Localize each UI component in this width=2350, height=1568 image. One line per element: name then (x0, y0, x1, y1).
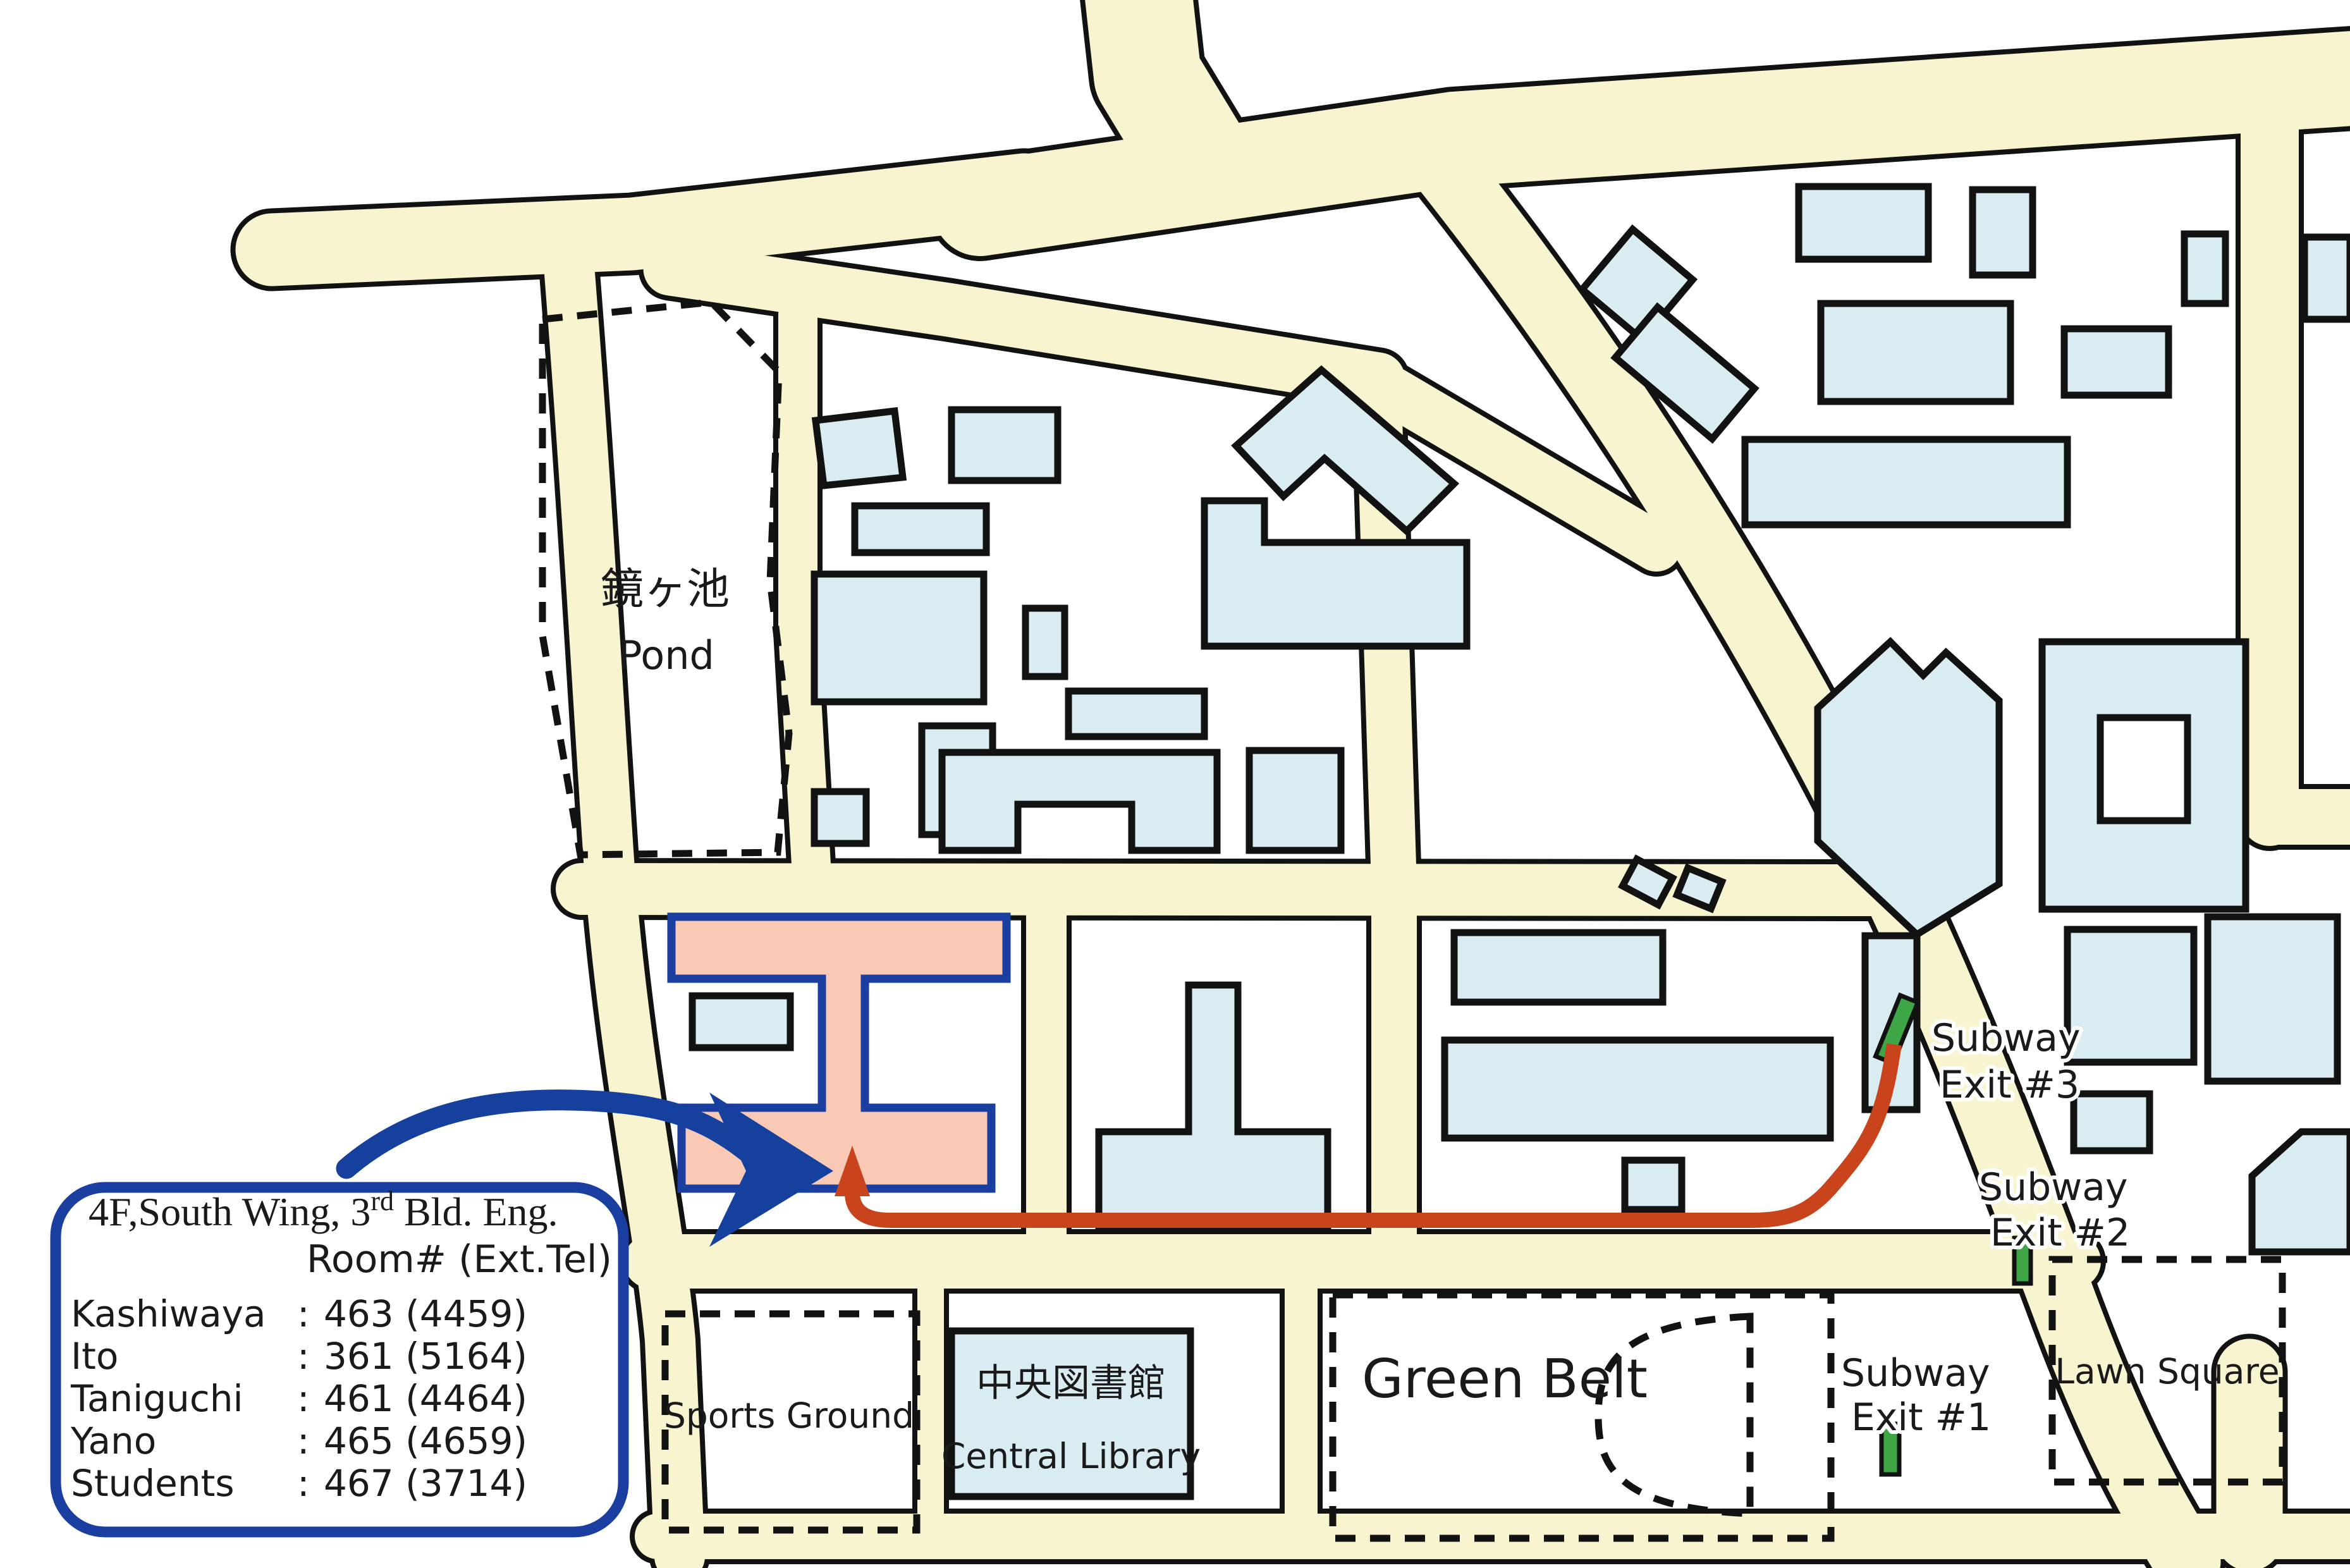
green-belt-track (1598, 1316, 1750, 1514)
pond-label-en: Pond (618, 632, 714, 678)
building (2304, 237, 2350, 319)
green-belt-label: Green Belt (1362, 1348, 1648, 1411)
building (855, 506, 986, 553)
svg-text:465 (4659): 465 (4659) (324, 1419, 527, 1462)
svg-text:461 (4464): 461 (4464) (324, 1377, 527, 1420)
building (1625, 1160, 1682, 1210)
svg-text:467 (3714): 467 (3714) (324, 1462, 527, 1505)
building (1454, 933, 1663, 1002)
building (814, 574, 984, 702)
svg-text::: : (297, 1335, 310, 1378)
campus-map: 鏡ヶ池 Pond Sports Ground 中央図書館 Central Lib… (0, 0, 2350, 1568)
building (1445, 1040, 1830, 1138)
svg-text:Exit #2: Exit #2 (1990, 1211, 2130, 1255)
svg-text:463 (4459): 463 (4459) (324, 1292, 527, 1335)
buildings (692, 187, 2350, 1252)
green-belt-outline (1333, 1295, 1831, 1538)
building (1799, 187, 1928, 259)
svg-text:Exit #3: Exit #3 (1940, 1063, 2079, 1107)
svg-text:Students: Students (71, 1462, 235, 1505)
svg-text::: : (297, 1462, 310, 1505)
subway-exit-1-label: Subway Exit #1 (1841, 1351, 1991, 1440)
svg-text::: : (297, 1419, 310, 1462)
building (1821, 303, 2010, 401)
building (1249, 750, 1341, 850)
building (1973, 190, 2033, 275)
building (1204, 501, 1467, 646)
svg-text::: : (297, 1292, 310, 1335)
building (2042, 642, 2246, 909)
building (942, 752, 1217, 850)
building (1068, 691, 1204, 737)
svg-text:361 (5164): 361 (5164) (324, 1335, 527, 1378)
staff-row: Taniguchi : 461 (4464) (70, 1377, 527, 1420)
svg-text:Yano: Yano (70, 1419, 156, 1462)
building (2252, 1132, 2350, 1252)
library-label-jp: 中央図書館 (976, 1361, 1166, 1406)
building (1099, 985, 1328, 1230)
callout-title: 4F,South Wing, 3rd Bld. Eng. (89, 1185, 558, 1234)
svg-text:Ito: Ito (71, 1335, 118, 1378)
staff-row: Yano : 465 (4659) (70, 1419, 527, 1462)
building (2067, 929, 2194, 1062)
building (2064, 329, 2169, 395)
sports-ground-label: Sports Ground (664, 1395, 914, 1436)
building (1745, 439, 2067, 525)
svg-text:Subway: Subway (1979, 1165, 2128, 1210)
building (1025, 608, 1065, 677)
callout: 4F,South Wing, 3rd Bld. Eng. Room# (Ext.… (56, 1185, 623, 1532)
building (814, 792, 866, 843)
svg-text:Subway: Subway (1841, 1351, 1990, 1395)
callout-room-header: Room# (Ext.Tel) (307, 1237, 612, 1282)
staff-row: Students : 467 (3714) (71, 1462, 527, 1505)
library-label-en: Central Library (941, 1436, 1201, 1476)
lawn-square-label: Lawn Square (2055, 1351, 2279, 1392)
building (2208, 917, 2337, 1081)
building (2074, 1094, 2150, 1151)
svg-text:Exit #1: Exit #1 (1851, 1395, 1991, 1440)
svg-text::: : (297, 1377, 310, 1420)
svg-text:Subway: Subway (1931, 1016, 2081, 1060)
building (692, 996, 790, 1048)
building (2184, 234, 2225, 303)
svg-text:Kashiwaya: Kashiwaya (71, 1292, 266, 1335)
svg-text:Taniguchi: Taniguchi (70, 1377, 243, 1420)
staff-row: Kashiwaya : 463 (4459) (71, 1292, 527, 1335)
destination-building-3rd-bld-eng (671, 917, 1007, 1189)
pond-label-jp: 鏡ヶ池 (601, 565, 730, 615)
building (816, 411, 903, 486)
building (952, 410, 1058, 481)
